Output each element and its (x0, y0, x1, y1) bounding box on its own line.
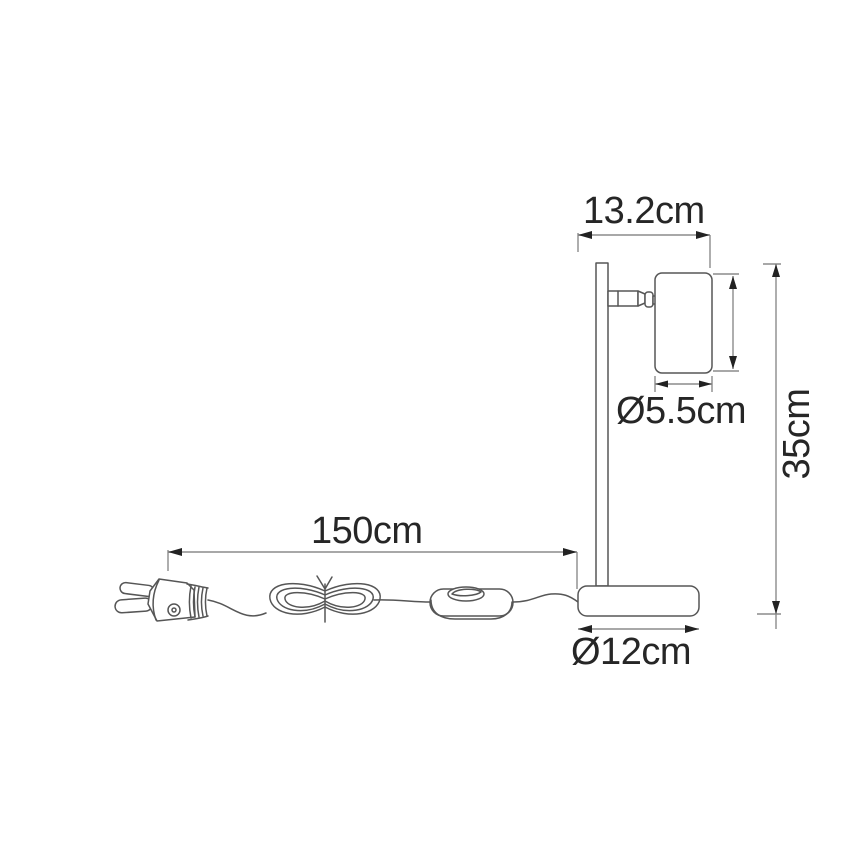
dim-label-cable-length: 150cm (311, 512, 423, 550)
dim-label-head-width: 13.2cm (583, 192, 705, 230)
euro-plug (115, 579, 208, 621)
spot-head (655, 273, 712, 373)
arm-joint (608, 291, 658, 307)
inline-switch (430, 587, 513, 619)
lamp-pole (596, 263, 608, 586)
dimension-head-height (713, 274, 739, 371)
cable-coil (270, 576, 380, 622)
power-cable (208, 594, 578, 616)
dimension-diagram: 13.2cm Ø5.5cm 35cm 150cm Ø12cm (0, 0, 868, 868)
dim-label-base-diameter: Ø12cm (571, 633, 691, 671)
lamp-line-art (0, 0, 868, 868)
lamp-base (578, 586, 699, 616)
dimension-cable-length (168, 548, 577, 589)
dim-label-head-diameter: Ø5.5cm (616, 392, 746, 430)
dim-label-total-height: 35cm (778, 388, 816, 480)
